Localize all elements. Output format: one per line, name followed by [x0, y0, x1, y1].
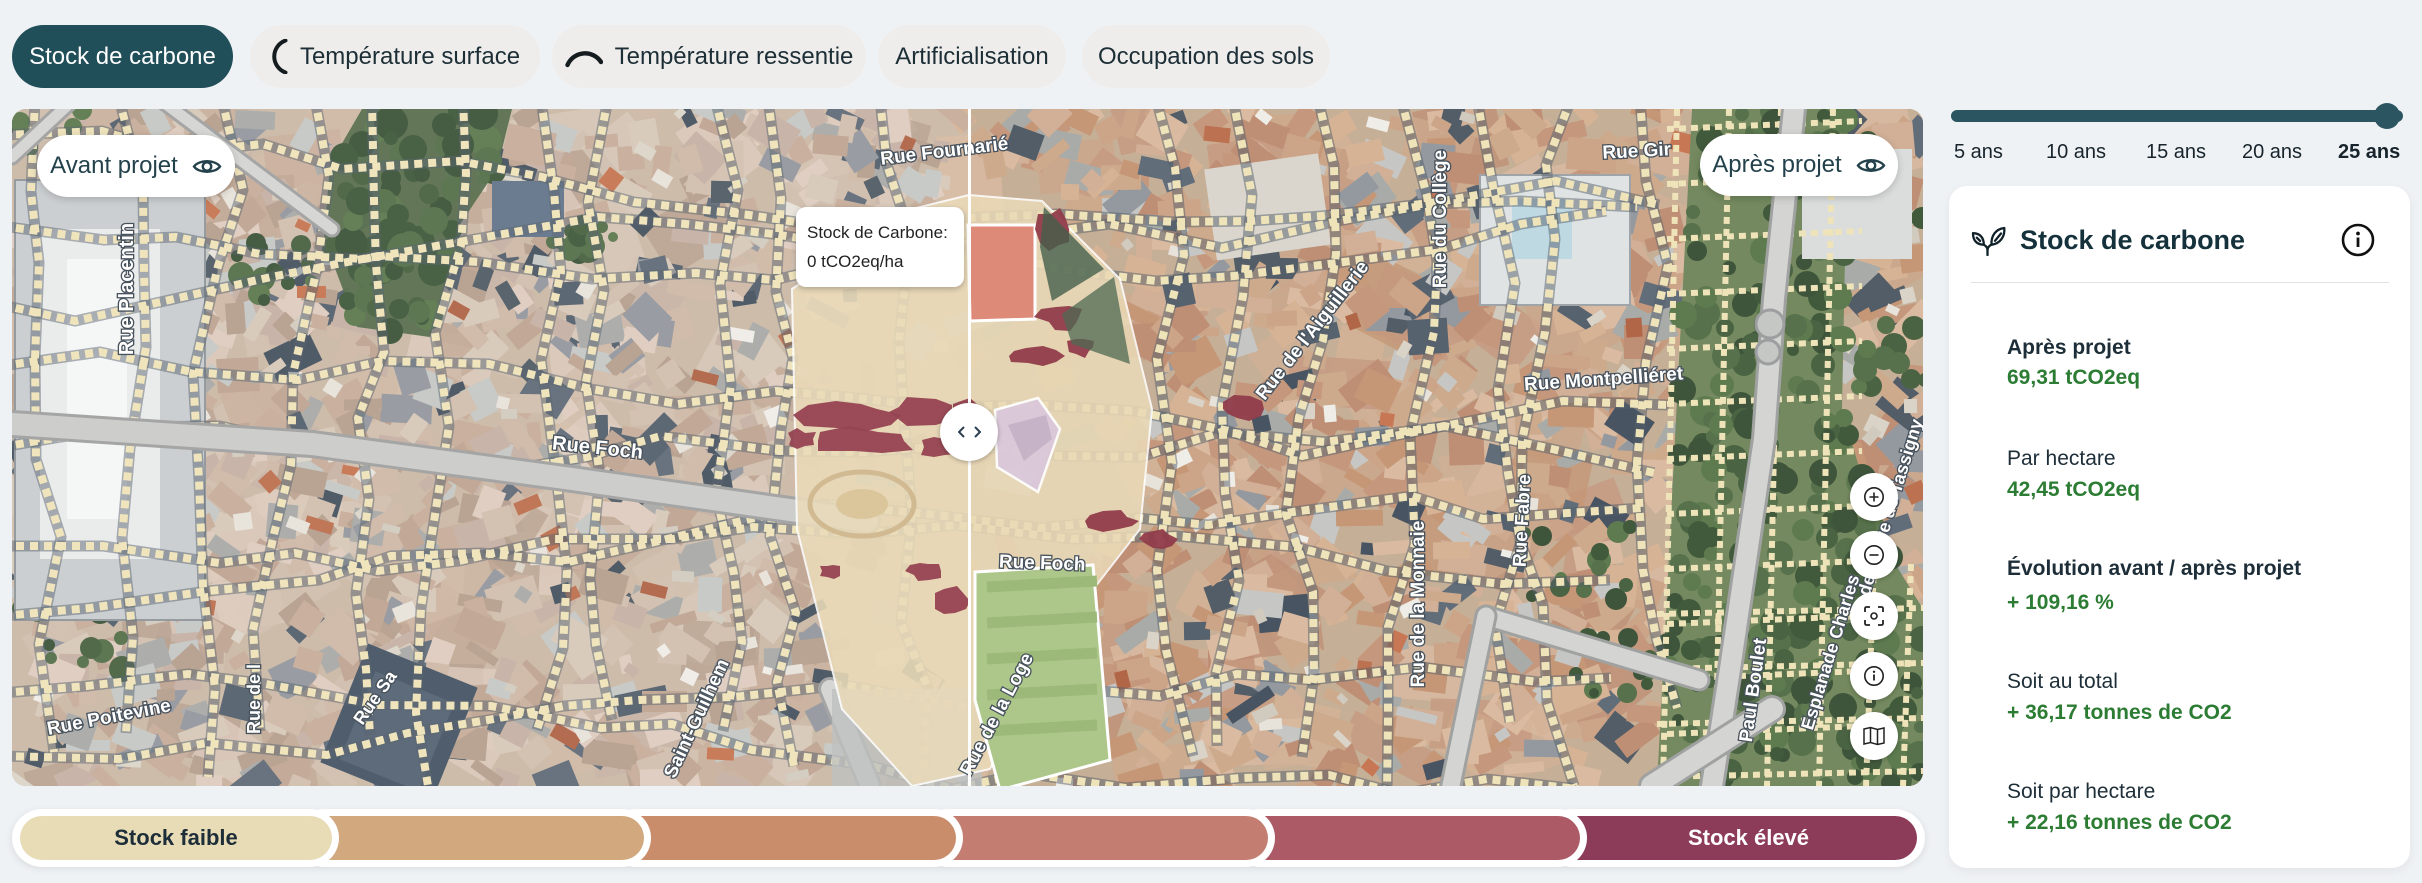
svg-text:Rue Placentin: Rue Placentin	[116, 223, 138, 355]
svg-text:Rue Gir: Rue Gir	[1602, 139, 1672, 164]
svg-text:Rue de l: Rue de l	[244, 664, 264, 734]
svg-text:Rue Foch: Rue Foch	[999, 551, 1086, 575]
svg-text:Rue de la Monnaie: Rue de la Monnaie	[1408, 521, 1429, 688]
svg-text:Rue du Collège: Rue du Collège	[1430, 150, 1451, 288]
